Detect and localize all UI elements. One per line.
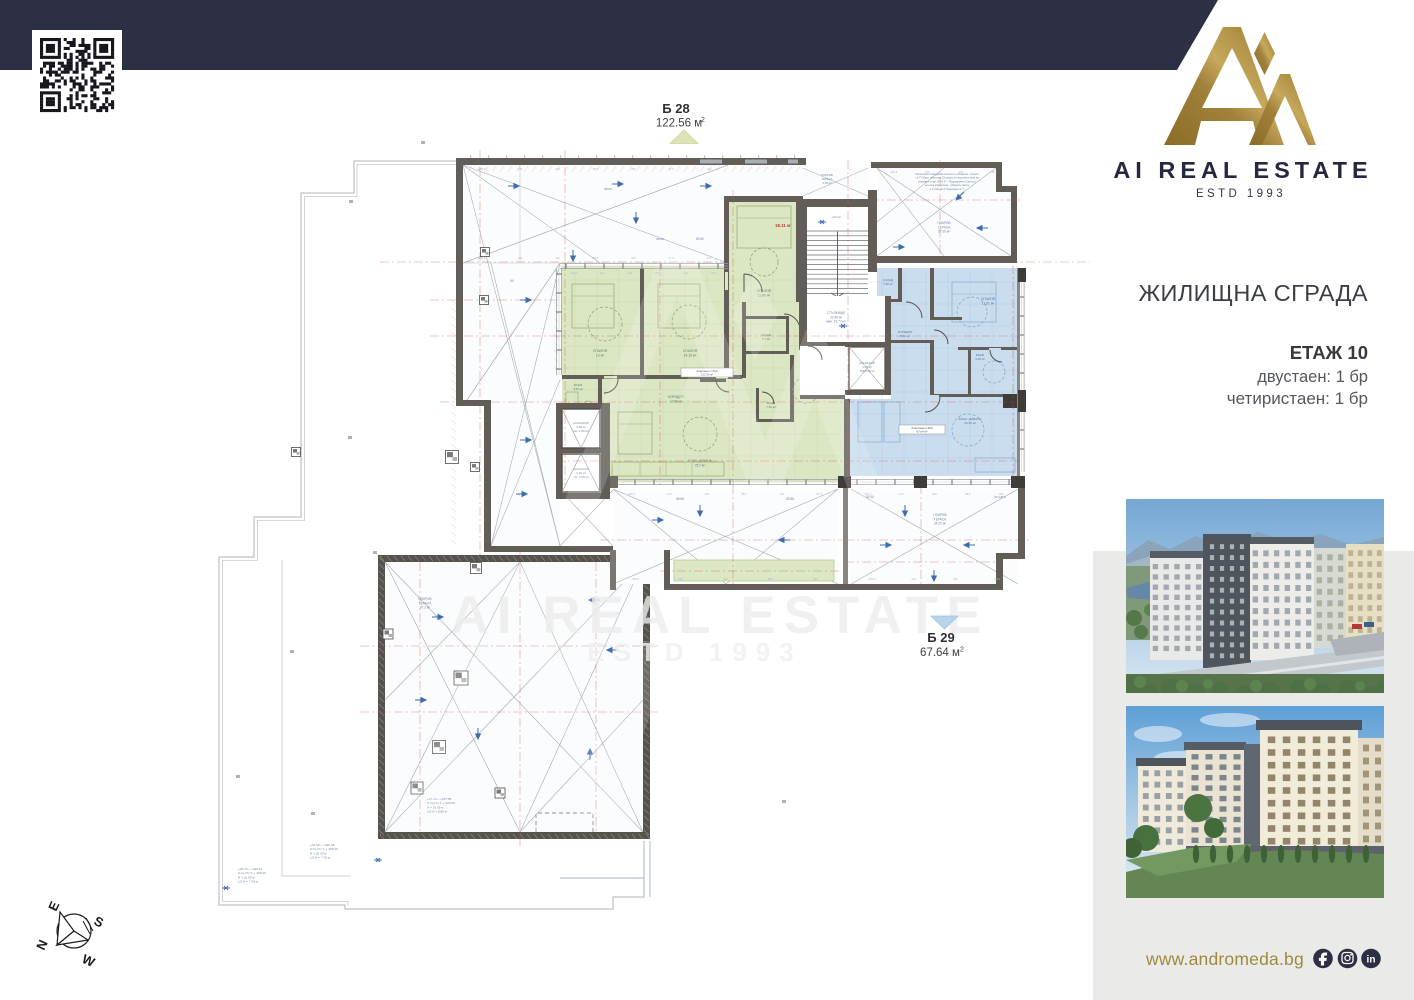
svg-text:260: 260 [631, 167, 636, 171]
svg-text:www.andromeda.bg: www.andromeda.bg [1145, 949, 1304, 969]
svg-text:1/3 H = 7.78 м: 1/3 H = 7.78 м [310, 856, 330, 860]
svg-text:67.64 м: 67.64 м [920, 647, 960, 659]
svg-text:260: 260 [999, 492, 1004, 496]
svg-text:Б 28: Б 28 [662, 101, 689, 116]
svg-text:88 88: 88 88 [604, 187, 612, 191]
svg-text:260: 260 [813, 577, 818, 581]
svg-text:25.7 м²: 25.7 м² [695, 463, 705, 467]
svg-text:двустаен: 1 бр: двустаен: 1 бр [1257, 368, 1368, 386]
svg-text:342: 342 [555, 167, 560, 171]
svg-text:+3.77 Макс. височина 25 месец: +3.77 Макс. височина 25 месец по масивна… [915, 176, 979, 180]
svg-text:97.2 м²: 97.2 м² [420, 606, 430, 610]
svg-text:140: 140 [899, 492, 904, 496]
svg-text:88.5: 88.5 [965, 492, 971, 496]
svg-text:122.56 м: 122.56 м [656, 118, 702, 130]
svg-text:кат. 2.09 м²: кат. 2.09 м² [574, 429, 589, 433]
svg-text:мин. 16.77 м²: мин. 16.77 м² [826, 320, 846, 324]
svg-text:ЕТАЖ 10: ЕТАЖ 10 [1290, 342, 1368, 363]
svg-text:342: 342 [704, 492, 709, 496]
svg-text:покривен етаж +29 м б° - Подпо: покривен етаж +29 м б° - Подпокривен (Св… [918, 179, 976, 183]
svg-text:+23.42: +23.42 [831, 215, 841, 219]
svg-text:3.65 м²: 3.65 м² [573, 387, 583, 391]
svg-text:445.5: 445.5 [628, 492, 635, 496]
svg-text:97.5: 97.5 [816, 492, 822, 496]
svg-text:88 88: 88 88 [676, 497, 684, 501]
svg-text:СПАЛНЯ: СПАЛНЯ [683, 349, 698, 353]
svg-text:415: 415 [707, 167, 712, 171]
svg-text:11.51 м²: 11.51 м² [982, 301, 995, 305]
svg-text:88.5: 88.5 [991, 170, 997, 174]
svg-text:14.16 м²: 14.16 м² [684, 354, 698, 358]
svg-text:88 88: 88 88 [656, 237, 664, 241]
svg-text:Б 29: Б 29 [927, 630, 954, 645]
svg-text:97.5: 97.5 [711, 271, 717, 275]
svg-text:1/3 H = 7.04 м: 1/3 H = 7.04 м [238, 880, 258, 884]
svg-text:на ръка измерения - габарити:: на ръка измерения - габарити: висок [925, 183, 970, 187]
svg-text:67.64 м²: 67.64 м² [917, 429, 928, 433]
svg-text:88.5: 88.5 [994, 577, 1000, 581]
svg-text:60: 60 [510, 279, 514, 283]
svg-text:AI REAL ESTATE: AI REAL ESTATE [1113, 157, 1372, 183]
svg-text:445.5: 445.5 [632, 577, 639, 581]
svg-text:88.5: 88.5 [593, 167, 599, 171]
svg-text:342: 342 [723, 577, 728, 581]
svg-text:ESTD 1993: ESTD 1993 [1196, 188, 1286, 200]
svg-text:445.5: 445.5 [571, 271, 578, 275]
svg-text:342: 342 [932, 492, 937, 496]
svg-text:260: 260 [631, 256, 636, 260]
svg-text:ESTD 1993: ESTD 1993 [587, 637, 802, 667]
svg-text:140: 140 [678, 577, 683, 581]
svg-text:415: 415 [707, 256, 712, 260]
svg-text:88.5: 88.5 [593, 256, 599, 260]
svg-text:СПАЛНЯ: СПАЛНЯ [981, 297, 996, 301]
svg-text:140: 140 [517, 167, 522, 171]
svg-text:7.81 м²: 7.81 м² [766, 405, 775, 409]
svg-text:4.69 м²: 4.69 м² [822, 181, 831, 185]
svg-text:3.96 м²: 3.96 м² [883, 282, 892, 286]
svg-text:445.5: 445.5 [478, 167, 485, 171]
svg-text:СПАЛНЯ: СПАЛНЯ [593, 349, 608, 353]
svg-text:13 м²: 13 м² [596, 354, 605, 358]
svg-text:140: 140 [517, 256, 522, 260]
svg-text:ЖИЛИЩНА СГРАДА: ЖИЛИЩНА СГРАДА [1138, 280, 1368, 306]
svg-text:18.11 м²: 18.11 м² [775, 223, 792, 228]
svg-text:140: 140 [667, 492, 672, 496]
svg-text:445.5: 445.5 [868, 577, 875, 581]
svg-text:445.5: 445.5 [890, 170, 897, 174]
svg-text:2: 2 [701, 117, 705, 124]
svg-text:140: 140 [600, 271, 605, 275]
svg-text:2 м (НЕ. кв.2 Параграф № 7): 2 м (НЕ. кв.2 Параграф № 7) [930, 187, 965, 191]
svg-text:2: 2 [960, 647, 964, 654]
svg-text:140: 140 [925, 170, 930, 174]
svg-text:97.5: 97.5 [668, 167, 674, 171]
svg-text:4.06 м²: 4.06 м² [975, 357, 984, 361]
svg-text:in: in [1367, 955, 1376, 966]
svg-text:342: 342 [953, 577, 958, 581]
svg-text:четиристаен: 1 бр: четиристаен: 1 бр [1227, 389, 1368, 408]
svg-text:342: 342 [555, 256, 560, 260]
svg-text:26.35 м²: 26.35 м² [964, 421, 976, 425]
svg-text:445.5: 445.5 [478, 256, 485, 260]
svg-text:34.20 м²: 34.20 м² [934, 522, 946, 526]
svg-text:88.5: 88.5 [768, 577, 774, 581]
svg-text:342: 342 [958, 170, 963, 174]
svg-text:468/8.16 м²: 468/8.16 м² [859, 369, 874, 373]
svg-text:140: 140 [911, 577, 916, 581]
svg-text:80 80: 80 80 [696, 237, 704, 241]
svg-text:342: 342 [628, 271, 633, 275]
